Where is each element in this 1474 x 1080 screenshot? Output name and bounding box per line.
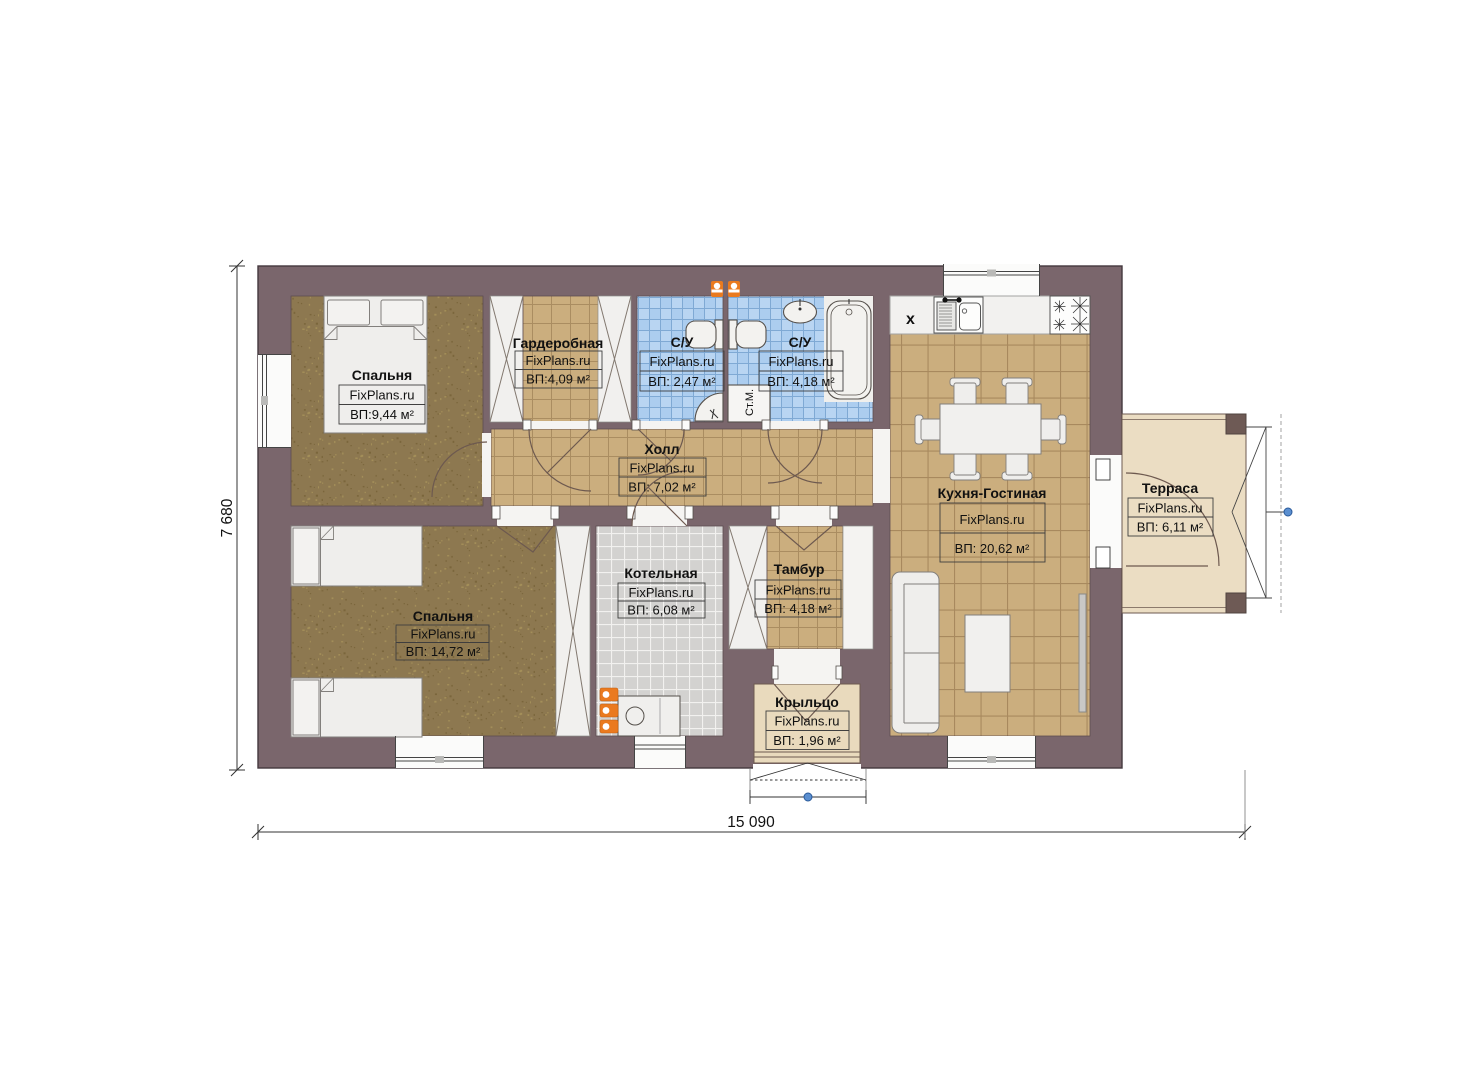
svg-text:15 090: 15 090 xyxy=(727,814,775,831)
svg-text:FixPlans.ru: FixPlans.ru xyxy=(649,354,714,369)
svg-text:ВП:4,09 м²: ВП:4,09 м² xyxy=(526,372,590,387)
svg-text:FixPlans.ru: FixPlans.ru xyxy=(525,353,590,368)
svg-text:Ст.М.: Ст.М. xyxy=(744,389,756,416)
svg-text:Котельная: Котельная xyxy=(624,565,697,581)
svg-text:ВП: 6,08 м²: ВП: 6,08 м² xyxy=(627,603,695,618)
svg-text:ВП: 1,96 м²: ВП: 1,96 м² xyxy=(773,733,841,748)
svg-text:FixPlans.ru: FixPlans.ru xyxy=(774,714,839,729)
svg-text:FixPlans.ru: FixPlans.ru xyxy=(410,627,475,642)
svg-text:FixPlans.ru: FixPlans.ru xyxy=(629,461,694,476)
svg-text:x: x xyxy=(906,311,915,328)
svg-text:7 680: 7 680 xyxy=(219,498,236,537)
svg-text:Спальня: Спальня xyxy=(352,367,412,383)
svg-text:ВП: 14,72 м²: ВП: 14,72 м² xyxy=(406,644,481,659)
svg-text:FixPlans.ru: FixPlans.ru xyxy=(959,512,1024,527)
svg-text:ВП: 7,02 м²: ВП: 7,02 м² xyxy=(628,480,696,495)
svg-text:Холл: Холл xyxy=(644,441,679,457)
svg-text:FixPlans.ru: FixPlans.ru xyxy=(349,388,414,403)
svg-text:С/У: С/У xyxy=(671,334,694,350)
svg-text:ВП:9,44 м²: ВП:9,44 м² xyxy=(350,407,414,422)
svg-text:ВП: 6,11 м²: ВП: 6,11 м² xyxy=(1137,520,1204,535)
svg-text:FixPlans.ru: FixPlans.ru xyxy=(765,583,830,598)
svg-text:Крыльцо: Крыльцо xyxy=(775,694,839,710)
svg-text:FixPlans.ru: FixPlans.ru xyxy=(628,585,693,600)
svg-text:С/У: С/У xyxy=(789,334,812,350)
svg-text:ВП: 4,18 м²: ВП: 4,18 м² xyxy=(767,374,835,389)
svg-text:ВП: 20,62 м²: ВП: 20,62 м² xyxy=(955,541,1030,556)
svg-text:Терраса: Терраса xyxy=(1142,480,1198,496)
svg-text:ВП: 2,47 м²: ВП: 2,47 м² xyxy=(648,374,716,389)
svg-text:Спальня: Спальня xyxy=(413,608,473,624)
svg-text:ВП: 4,18 м²: ВП: 4,18 м² xyxy=(764,601,832,616)
svg-text:FixPlans.ru: FixPlans.ru xyxy=(1137,501,1202,516)
svg-text:Кухня-Гостиная: Кухня-Гостиная xyxy=(938,485,1047,501)
svg-text:FixPlans.ru: FixPlans.ru xyxy=(768,354,833,369)
svg-text:Гардеробная: Гардеробная xyxy=(513,335,604,351)
svg-text:Тамбур: Тамбур xyxy=(774,561,825,577)
